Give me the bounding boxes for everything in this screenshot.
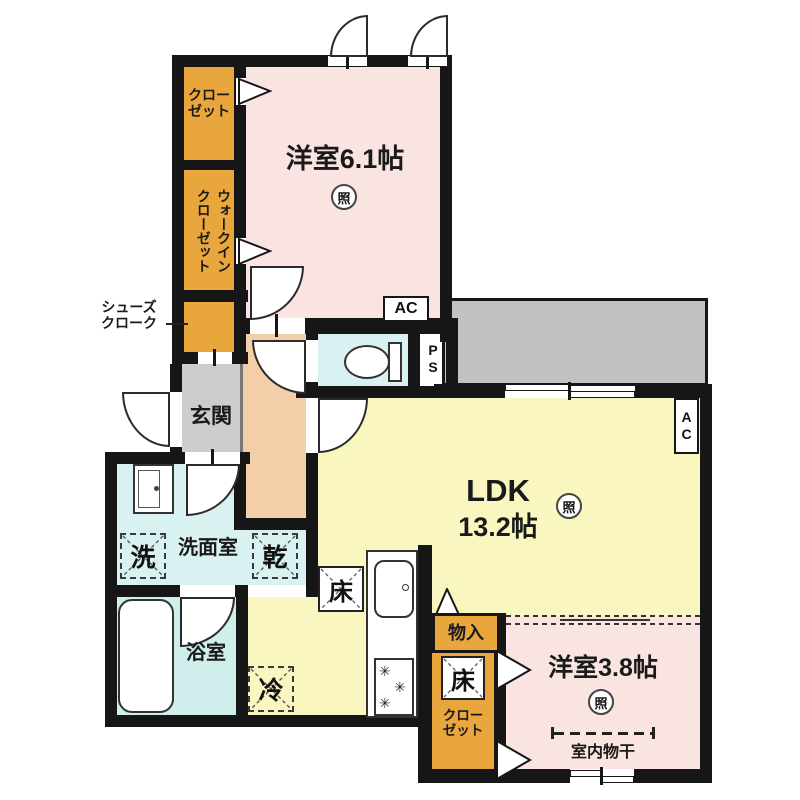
label-closet-bottom: クロー ゼット <box>434 708 492 738</box>
floor-hatch-label: 床 <box>451 661 475 696</box>
wall-segment <box>418 769 570 783</box>
light-symbol: 照 <box>331 184 357 210</box>
toilet-bowl <box>344 345 390 379</box>
burner-icon: ✳ <box>379 696 391 710</box>
label-indoor-drying: 室内物干 <box>546 744 660 762</box>
door-tick <box>213 349 216 366</box>
ac-box-bedroom: AC <box>383 296 429 322</box>
fridge-box: 冷 <box>248 666 294 712</box>
burner-icon: ✳ <box>379 664 391 678</box>
wic-line2: クローゼット <box>193 174 213 288</box>
wall-segment <box>105 585 180 597</box>
open-partition-line <box>560 619 650 621</box>
light-label: 照 <box>337 188 350 207</box>
kitchen-faucet <box>402 584 409 591</box>
ac-label: AC <box>394 300 417 318</box>
dryer-label: 乾 <box>262 538 287 574</box>
wall-segment <box>172 290 248 302</box>
label-washroom: 洗面室 <box>168 537 248 559</box>
light-label: 照 <box>594 693 607 712</box>
door-gap <box>180 585 235 597</box>
label-walkin-closet: ウォークイン クローゼット <box>186 174 234 288</box>
floor-hatch-box: 床 <box>441 656 485 700</box>
floor-hatch-label: 床 <box>329 572 353 607</box>
wall-segment <box>700 384 712 783</box>
ac-label: AC <box>679 409 695 443</box>
wall-segment <box>418 545 432 783</box>
door-swing-entrance <box>122 392 170 447</box>
storage-box: 物入 <box>432 613 500 653</box>
open-partition-line <box>506 623 700 625</box>
closet-door-icon <box>496 740 532 780</box>
ac-box-ldk: AC <box>674 398 699 454</box>
wall-segment <box>434 384 505 398</box>
toilet-tank <box>388 342 402 382</box>
door-gap <box>170 392 182 447</box>
label-bedroom-6-1: 洋室6.1帖 <box>245 144 445 174</box>
label-ldk: LDK <box>318 474 678 509</box>
closet-door-icon <box>238 78 272 105</box>
washer-label: 洗 <box>130 538 155 574</box>
kitchen-counter: ✳ ✳ ✳ <box>366 550 418 718</box>
wall-segment <box>634 769 712 783</box>
label-bedroom-3-8: 洋室3.8帖 <box>506 654 700 682</box>
label-genkan: 玄関 <box>182 405 240 429</box>
label-closet-top: クロー ゼット <box>184 88 234 119</box>
sliding-window <box>570 770 603 777</box>
burner-icon: ✳ <box>394 680 406 694</box>
wall-segment <box>170 364 182 392</box>
door-gap <box>306 398 318 453</box>
ps-label: PS <box>425 342 441 376</box>
wall-segment <box>172 55 184 364</box>
wall-segment <box>440 55 452 342</box>
kitchen-stove: ✳ ✳ ✳ <box>374 658 414 716</box>
wall-segment <box>408 332 420 386</box>
window-tick <box>600 767 603 785</box>
label-shoe-cloak: シューズ クローク <box>90 300 168 331</box>
balcony <box>442 298 708 386</box>
door-gap <box>306 340 318 382</box>
closet-door-icon <box>238 238 272 265</box>
wall-segment <box>240 518 318 530</box>
label-ldk-size: 13.2帖 <box>318 512 678 542</box>
sliding-window <box>505 384 571 391</box>
window-swing <box>410 15 448 57</box>
window-tick <box>568 382 571 400</box>
bathtub <box>118 599 174 713</box>
washbasin-handle <box>154 486 159 491</box>
wic-line1: ウォークイン <box>214 174 234 288</box>
floor-plan: ✳ ✳ ✳ 洗 乾 冷 床 床 物入 照 照 照 AC AC PS 洋室6 <box>0 0 800 800</box>
pipe-space-label: PS <box>420 334 446 384</box>
window-swing <box>330 15 368 57</box>
wall-segment <box>236 585 248 727</box>
door-tick <box>275 314 278 337</box>
room-shoe-cloak <box>184 302 234 352</box>
wall-segment <box>105 452 185 464</box>
sliding-window <box>601 776 634 783</box>
light-symbol: 照 <box>588 689 614 715</box>
washbasin <box>133 464 174 514</box>
sliding-window <box>569 391 635 398</box>
genkan-step-line <box>240 364 243 452</box>
storage-label: 物入 <box>448 623 484 643</box>
shoe-cloak-pointer <box>166 323 188 325</box>
dryer-box: 乾 <box>252 533 298 579</box>
label-bathroom: 浴室 <box>176 642 236 664</box>
fridge-label: 冷 <box>258 671 283 707</box>
drying-rack-icon <box>551 727 655 739</box>
open-partition-line <box>506 615 700 617</box>
wall-segment <box>184 160 234 170</box>
floor-hatch-box: 床 <box>318 566 364 612</box>
washer-box: 洗 <box>120 533 166 579</box>
